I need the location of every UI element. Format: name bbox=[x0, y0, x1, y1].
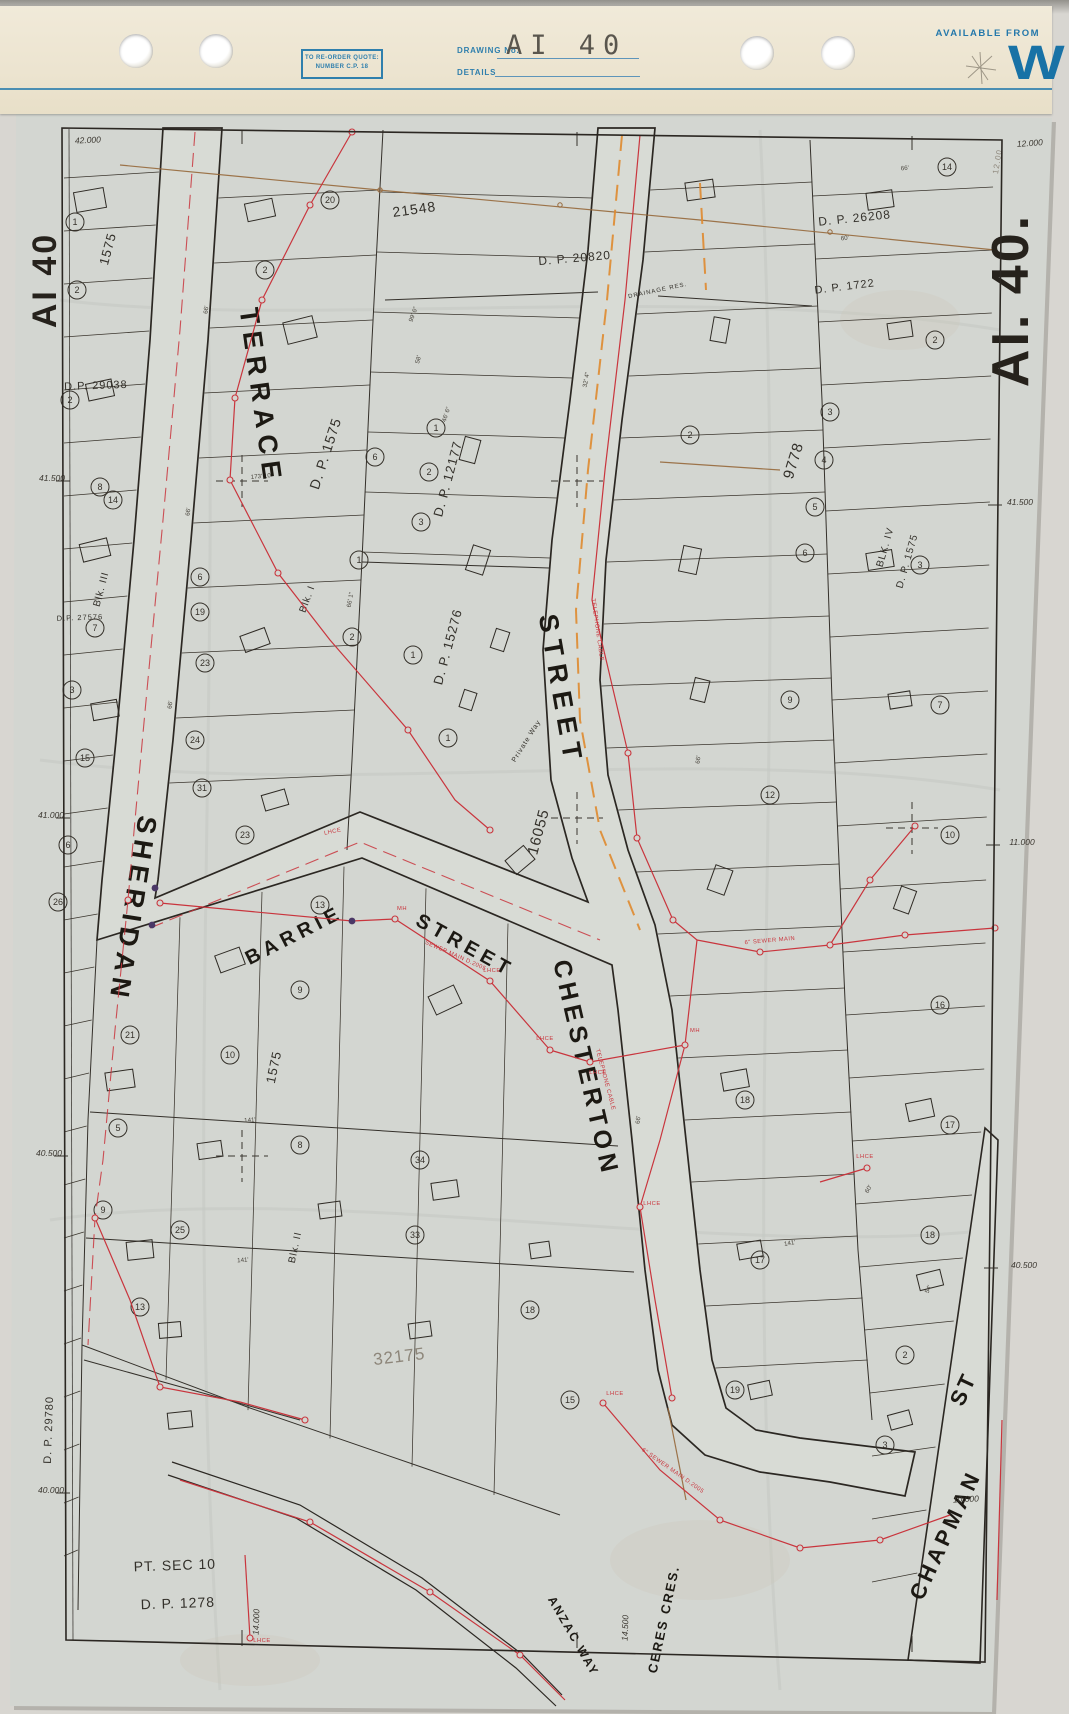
punch-hole bbox=[740, 36, 774, 70]
reorder-note-line2: NUMBER C.P. 18 bbox=[303, 63, 381, 72]
reorder-note-line1: TO RE-ORDER QUOTE: bbox=[303, 54, 381, 63]
grid-coordinate-label: 41.500 bbox=[1007, 497, 1033, 507]
grid-coordinate-label: 41.500 bbox=[39, 473, 65, 483]
dimension-label: 66' bbox=[901, 165, 910, 173]
circled-lot-number: 6 bbox=[372, 452, 377, 462]
plan-label: D.P. 29038 bbox=[64, 379, 128, 393]
red-survey-node bbox=[902, 932, 908, 938]
plan-label: D. P. 29780 bbox=[42, 1396, 56, 1464]
circled-lot-number: 1 bbox=[445, 733, 450, 743]
red-survey-node bbox=[392, 916, 398, 922]
circled-lot-number: 21 bbox=[125, 1030, 135, 1040]
red-survey-node bbox=[625, 750, 631, 756]
circled-lot-number: 8 bbox=[297, 1140, 302, 1150]
punch-hole bbox=[821, 36, 855, 70]
purple-survey-node bbox=[349, 918, 356, 925]
circled-lot-number: 10 bbox=[225, 1050, 235, 1060]
grid-coordinate-label: 10.000 bbox=[953, 1493, 980, 1504]
drawing-no-value: AI 40 bbox=[506, 30, 627, 61]
circled-lot-number: 15 bbox=[565, 1395, 575, 1405]
circled-lot-number: 19 bbox=[730, 1385, 740, 1395]
header-divider-rule bbox=[0, 88, 1052, 90]
circled-lot-number: 5 bbox=[115, 1123, 120, 1133]
circled-lot-number: 4 bbox=[821, 455, 826, 465]
red-survey-node bbox=[259, 297, 265, 303]
circled-lot-number: 16 bbox=[935, 1000, 945, 1010]
pencil-scribble bbox=[962, 48, 1004, 88]
circled-lot-number: 1 bbox=[72, 217, 77, 227]
red-survey-node bbox=[547, 1047, 553, 1053]
red-survey-node bbox=[307, 1519, 313, 1525]
circled-lot-number: 2 bbox=[687, 430, 692, 440]
circled-lot-number: 13 bbox=[135, 1302, 145, 1312]
purple-survey-node bbox=[152, 885, 159, 892]
circled-lot-number: 9 bbox=[297, 985, 302, 995]
red-survey-node bbox=[232, 395, 238, 401]
circled-lot-number: 2 bbox=[426, 467, 431, 477]
drawing-no-rule bbox=[497, 58, 639, 59]
grid-coordinate-label: 41.000 bbox=[38, 810, 64, 820]
circled-lot-number: 2 bbox=[932, 335, 937, 345]
circled-lot-number: 3 bbox=[882, 1440, 887, 1450]
circled-lot-number: 6 bbox=[65, 840, 70, 850]
red-survey-label: LHCE bbox=[253, 1638, 270, 1644]
red-survey-node bbox=[864, 1165, 870, 1171]
paper-stain bbox=[610, 1520, 790, 1600]
red-survey-label: LHCE bbox=[643, 1201, 660, 1207]
red-survey-node bbox=[405, 727, 411, 733]
circled-lot-number: 23 bbox=[240, 830, 250, 840]
circled-lot-number: 7 bbox=[937, 700, 942, 710]
red-survey-node bbox=[247, 1635, 253, 1641]
header-paper: TO RE-ORDER QUOTE: NUMBER C.P. 18 DRAWIN… bbox=[0, 6, 1052, 114]
circled-lot-number: 10 bbox=[945, 830, 955, 840]
grid-coordinate-label: 40.000 bbox=[38, 1485, 64, 1495]
purple-survey-node bbox=[149, 922, 156, 929]
red-survey-label: MH bbox=[690, 1028, 700, 1034]
grid-coordinate-label: 40.500 bbox=[1011, 1260, 1037, 1270]
circled-lot-number: 2 bbox=[349, 632, 354, 642]
dimension-label: 66' bbox=[203, 305, 211, 314]
circled-lot-number: 24 bbox=[190, 735, 200, 745]
circled-lot-number: 1 bbox=[356, 555, 361, 565]
plan-label: PT. SEC 10 bbox=[133, 1556, 216, 1575]
grid-coordinate-label: 40.500 bbox=[36, 1148, 62, 1158]
circled-lot-number: 2 bbox=[74, 285, 79, 295]
survey-map-sheet: 1228147315626913215612312111323619232431… bbox=[0, 0, 1069, 1714]
circled-lot-number: 33 bbox=[410, 1230, 420, 1240]
circled-lot-number: 3 bbox=[418, 517, 423, 527]
circled-lot-number: 6 bbox=[197, 572, 202, 582]
reorder-note-box: TO RE-ORDER QUOTE: NUMBER C.P. 18 bbox=[301, 49, 383, 79]
circled-lot-number: 20 bbox=[325, 195, 335, 205]
circled-lot-number: 5 bbox=[812, 502, 817, 512]
dimension-label: 66' bbox=[635, 1116, 643, 1125]
red-survey-label: MH bbox=[397, 906, 407, 912]
circled-lot-number: 14 bbox=[108, 495, 118, 505]
circled-lot-number: 1 bbox=[433, 423, 438, 433]
circled-lot-number: 6 bbox=[802, 548, 807, 558]
circled-lot-number: 9 bbox=[100, 1205, 105, 1215]
dimension-label: 66' bbox=[694, 755, 702, 764]
circled-lot-number: 17 bbox=[755, 1255, 765, 1265]
punch-hole bbox=[199, 34, 233, 68]
circled-lot-number: 12 bbox=[765, 790, 775, 800]
red-survey-node bbox=[600, 1400, 606, 1406]
scanned-plan-page: 1228147315626913215612312111323619232431… bbox=[0, 0, 1069, 1714]
grid-coordinate-label: 12.000 bbox=[1016, 137, 1043, 149]
red-survey-node bbox=[92, 1215, 98, 1221]
red-survey-node bbox=[125, 897, 131, 903]
red-survey-node bbox=[275, 570, 281, 576]
red-survey-node bbox=[670, 917, 676, 923]
dimension-label: 60' bbox=[840, 235, 849, 243]
dimension-label: 141' bbox=[237, 1257, 249, 1265]
sheet-id-right: AI. 40. bbox=[982, 213, 1040, 387]
circled-lot-number: 2 bbox=[902, 1350, 907, 1360]
red-survey-node bbox=[637, 1204, 643, 1210]
circled-lot-number: 18 bbox=[740, 1095, 750, 1105]
red-survey-node bbox=[487, 978, 493, 984]
dimension-label: 66' bbox=[185, 507, 193, 516]
red-survey-node bbox=[827, 942, 833, 948]
red-survey-node bbox=[487, 827, 493, 833]
red-survey-label: LHCE bbox=[856, 1154, 873, 1160]
red-survey-node bbox=[307, 202, 313, 208]
circled-lot-number: 18 bbox=[925, 1230, 935, 1240]
red-survey-node bbox=[157, 1384, 163, 1390]
paper-stain bbox=[180, 1634, 320, 1686]
dimension-label: 66' bbox=[167, 700, 175, 709]
red-survey-node bbox=[797, 1545, 803, 1551]
circled-lot-number: 9 bbox=[787, 695, 792, 705]
circled-lot-number: 17 bbox=[945, 1120, 955, 1130]
red-survey-node bbox=[157, 900, 163, 906]
circled-lot-number: 23 bbox=[200, 658, 210, 668]
red-survey-node bbox=[634, 835, 640, 841]
red-survey-node bbox=[302, 1417, 308, 1423]
red-survey-node bbox=[669, 1395, 675, 1401]
grid-coordinate-label: 14.500 bbox=[620, 1614, 631, 1641]
red-survey-node bbox=[227, 477, 233, 483]
red-survey-node bbox=[427, 1589, 433, 1595]
red-survey-node bbox=[587, 1059, 593, 1065]
red-survey-node bbox=[717, 1517, 723, 1523]
supplier-w-logo: W bbox=[1008, 36, 1065, 91]
circled-lot-number: 15 bbox=[80, 753, 90, 763]
details-rule bbox=[495, 76, 640, 77]
grid-coordinate-label: 14.000 bbox=[251, 1608, 262, 1635]
circled-lot-number: 34 bbox=[415, 1155, 425, 1165]
red-survey-node bbox=[517, 1652, 523, 1658]
circled-lot-number: 18 bbox=[525, 1305, 535, 1315]
sheet-id-left: AI 40 bbox=[26, 232, 64, 328]
red-survey-node bbox=[877, 1537, 883, 1543]
circled-lot-number: 26 bbox=[53, 897, 63, 907]
circled-lot-number: 3 bbox=[827, 407, 832, 417]
circled-lot-number: 1 bbox=[410, 650, 415, 660]
circled-lot-number: 3 bbox=[917, 560, 922, 570]
punch-hole bbox=[119, 34, 153, 68]
circled-lot-number: 19 bbox=[195, 607, 205, 617]
red-survey-label: LHCE bbox=[536, 1036, 553, 1042]
red-survey-node bbox=[867, 877, 873, 883]
plan-label: D. P. 1278 bbox=[140, 1594, 215, 1613]
grid-coordinate-label: 42.000 bbox=[75, 134, 102, 145]
circled-lot-number: 2 bbox=[262, 265, 267, 275]
red-survey-node bbox=[682, 1042, 688, 1048]
red-survey-label: LHCE bbox=[606, 1391, 623, 1397]
grid-coordinate-label: 11.000 bbox=[1009, 837, 1035, 847]
red-survey-node bbox=[757, 949, 763, 955]
circled-lot-number: 7 bbox=[92, 623, 97, 633]
red-survey-node bbox=[912, 823, 918, 829]
circled-lot-number: 31 bbox=[197, 783, 207, 793]
details-label: DETAILS bbox=[457, 68, 496, 77]
circled-lot-number: 8 bbox=[97, 482, 102, 492]
circled-lot-number: 25 bbox=[175, 1225, 185, 1235]
dimension-label: 141' bbox=[244, 1117, 256, 1125]
circled-lot-number: 14 bbox=[942, 162, 952, 172]
